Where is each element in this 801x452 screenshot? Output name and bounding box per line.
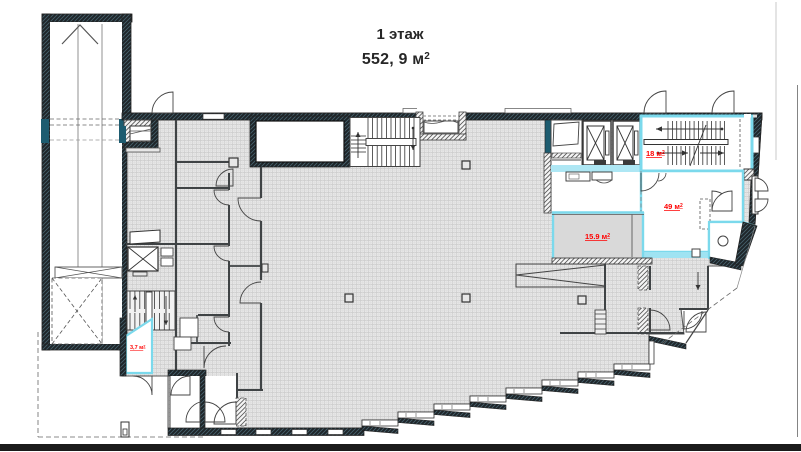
svg-text:1 этаж: 1 этаж [377,26,424,43]
svg-text:552, 9 м2: 552, 9 м2 [362,51,430,68]
svg-text:15.9 м2: 15.9 м2 [585,232,610,241]
